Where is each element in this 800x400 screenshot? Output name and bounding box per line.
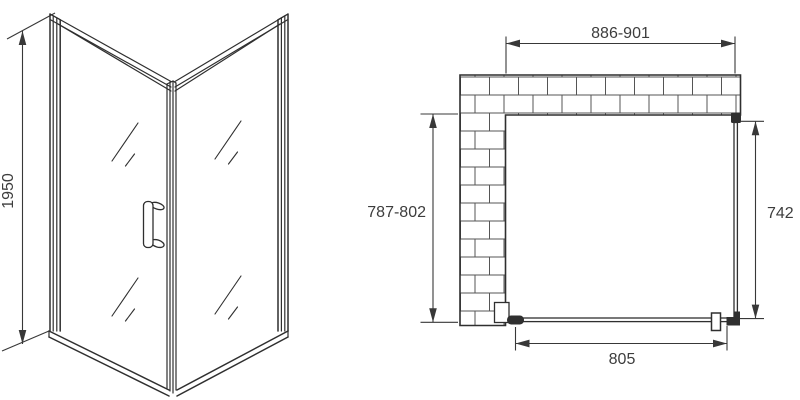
brick-wall (460, 75, 741, 326)
extension-line-top (7, 13, 55, 39)
height-dimension-label: 1950 (0, 173, 17, 209)
shower-enclosure-drawing: 1950 (0, 0, 800, 400)
right-frame-post (278, 14, 288, 331)
wall-bracket (731, 113, 741, 124)
width-dimension: 886-901 (506, 25, 735, 74)
height-dimension: 1950 (0, 13, 55, 351)
plan-view: 886-901 787-802 742 805 (367, 25, 794, 368)
arrow-up-icon (19, 31, 27, 45)
door-hinge (507, 316, 524, 325)
arrow-right-icon (713, 340, 727, 348)
arrow-up-icon (429, 114, 437, 128)
arrow-down-icon (752, 305, 760, 319)
reflection-mark (215, 276, 241, 319)
arrow-right-icon (721, 40, 735, 48)
left-frame-post (50, 14, 60, 331)
depth-dimension: 787-802 (367, 114, 458, 322)
door-panel (523, 318, 728, 322)
reflection-mark (215, 121, 241, 164)
arrow-left-icon (516, 340, 530, 348)
door-handle-icon (144, 201, 166, 249)
bottom-rails (49, 331, 288, 396)
top-rails (50, 14, 288, 91)
arrow-left-icon (506, 40, 520, 48)
reflection-mark (112, 278, 138, 321)
corner-post (167, 81, 176, 393)
depth-dimension-label: 787-802 (367, 204, 426, 221)
arrow-up-icon (752, 121, 760, 135)
side-glass-panel (734, 123, 737, 317)
technical-drawing-canvas: 1950 (0, 0, 800, 400)
door-dimension-label: 805 (609, 351, 636, 368)
side-view-3d: 1950 (0, 13, 288, 396)
corner-connector (727, 312, 741, 326)
reflection-mark (112, 123, 138, 166)
extension-line-bottom (2, 331, 49, 351)
door-dimension: 805 (516, 326, 728, 368)
panel-dimension-label: 742 (767, 205, 794, 222)
arrow-down-icon (429, 308, 437, 322)
panel-dimension: 742 (740, 121, 794, 318)
door-knob (712, 313, 721, 331)
wall-end-profile (495, 303, 510, 323)
arrow-down-icon (19, 330, 27, 344)
width-dimension-label: 886-901 (591, 25, 650, 42)
